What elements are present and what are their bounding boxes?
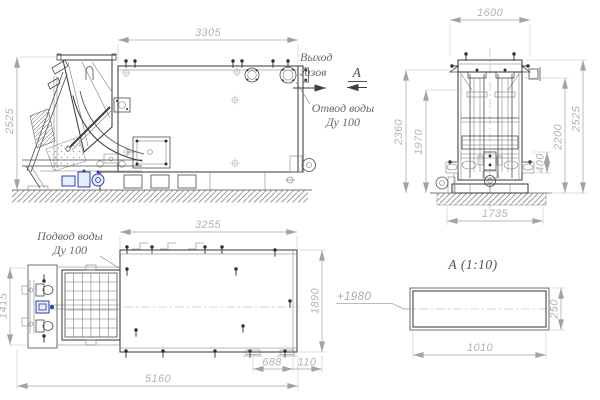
section-view: А (1:10) +1980 250 1010 bbox=[336, 257, 565, 359]
water-outlet-label-2: Ду 100 bbox=[325, 115, 360, 129]
dim-plan-110: 110 bbox=[298, 357, 317, 369]
dim-side-height: 2525 bbox=[4, 107, 16, 135]
side-pipe-stub bbox=[529, 67, 540, 81]
dim-front-2200: 2200 bbox=[553, 123, 565, 151]
section-title: А (1:10) bbox=[447, 257, 497, 272]
dim-section-w: 1010 bbox=[467, 342, 494, 354]
front-view: 1600 2360 1970 400 2200 2525 1735 bbox=[393, 7, 587, 225]
dim-plan-total: 5160 bbox=[145, 373, 172, 385]
dim-front-2360: 2360 bbox=[393, 118, 405, 146]
dim-front-1970: 1970 bbox=[413, 128, 425, 155]
dim-section-h: 250 bbox=[549, 299, 561, 320]
dim-plan-688: 688 bbox=[262, 357, 282, 369]
base-frame bbox=[100, 172, 303, 190]
pump-plan-blue bbox=[36, 301, 49, 313]
elevation-mark: +1980 bbox=[337, 291, 372, 303]
water-inlet-leader bbox=[100, 256, 119, 268]
water-outlet-label-1: Отвод воды bbox=[312, 101, 374, 115]
dim-front-400: 400 bbox=[535, 153, 547, 173]
gas-outlet-label-1: Выход bbox=[300, 50, 332, 64]
gas-outlet-label-2: газов bbox=[300, 65, 326, 79]
ground-slab bbox=[437, 193, 546, 205]
dim-plan-width: 3255 bbox=[195, 219, 222, 231]
dim-front-base: 1735 bbox=[482, 208, 509, 220]
annotation-labels: Выход газов А Отвод воды Ду 100 bbox=[293, 50, 374, 129]
hopper-assembly bbox=[22, 54, 144, 190]
water-inlet-label-1: Подвод воды bbox=[36, 229, 103, 243]
dim-side-width: 3305 bbox=[195, 27, 222, 39]
dim-front-width: 1600 bbox=[477, 7, 504, 19]
tipper-assembly-plan bbox=[22, 265, 120, 348]
dim-plan-right: 1890 bbox=[310, 287, 322, 314]
side-view: 3305 2525 bbox=[4, 27, 316, 203]
plan-view: Подвод воды Ду 100 3255 1415 1890 688 11… bbox=[0, 219, 326, 390]
dim-plan-left: 1415 bbox=[0, 292, 10, 319]
drawing-canvas: 3305 2525 Выход газов А Отвод воды Ду 10… bbox=[0, 0, 600, 400]
ground-hatch bbox=[12, 191, 308, 203]
section-arrow-letter: А bbox=[352, 65, 362, 80]
access-hatch bbox=[128, 137, 170, 168]
water-inlet-label-2: Ду 100 bbox=[52, 243, 87, 257]
flange-circle-large bbox=[280, 67, 296, 83]
pump-unit-blue bbox=[62, 170, 104, 188]
dim-front-2525: 2525 bbox=[571, 105, 583, 133]
technical-drawing: 3305 2525 Выход газов А Отвод воды Ду 10… bbox=[0, 0, 600, 400]
